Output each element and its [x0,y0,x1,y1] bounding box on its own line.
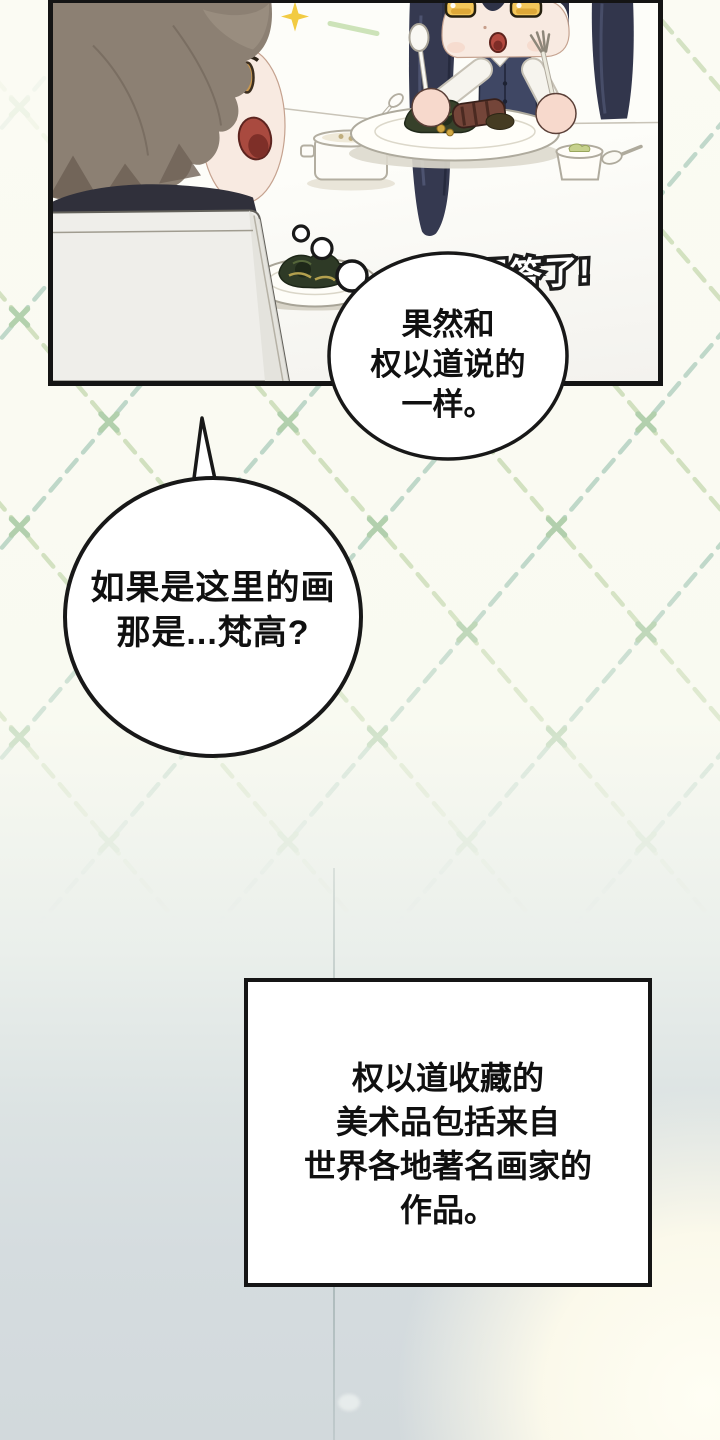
speech-bubble-2-text: 如果是这里的画 那是...梵高? [63,566,363,656]
caption-line4: 作品。 [400,1188,496,1232]
caption-line1: 权以道收藏的 [352,1056,544,1100]
chair-back [53,211,289,382]
caption-line3: 世界各地著名画家的 [304,1144,592,1188]
bubble2-line1: 如果是这里的画 [91,566,336,611]
bubble1-line1: 果然和 [402,305,495,345]
comic-page: 回答了! 回答了! 果然和 权以道说的 一样。 如果是这里的画 那是...梵高?… [0,0,720,1440]
bubble1-line2: 权以道说的 [371,345,526,385]
speech-bubble-2: 如果是这里的画 那是...梵高? [55,410,375,770]
bubble2-line2: 那是...梵高? [116,611,309,656]
spoon-icon [410,24,429,51]
highlight-dot [338,1394,360,1411]
speech-bubble-1-text: 果然和 权以道说的 一样。 [322,305,574,425]
bubble1-line3: 一样。 [402,385,495,425]
nose-dot [483,26,486,29]
caption-line2: 美术品包括来自 [336,1100,560,1144]
sparkle-icon [281,3,309,32]
left-character [53,3,285,218]
speed-line [330,24,377,34]
narration-box: 权以道收藏的 美术品包括来自 世界各地著名画家的 作品。 [244,978,652,1287]
side-dish-cup [557,144,642,179]
